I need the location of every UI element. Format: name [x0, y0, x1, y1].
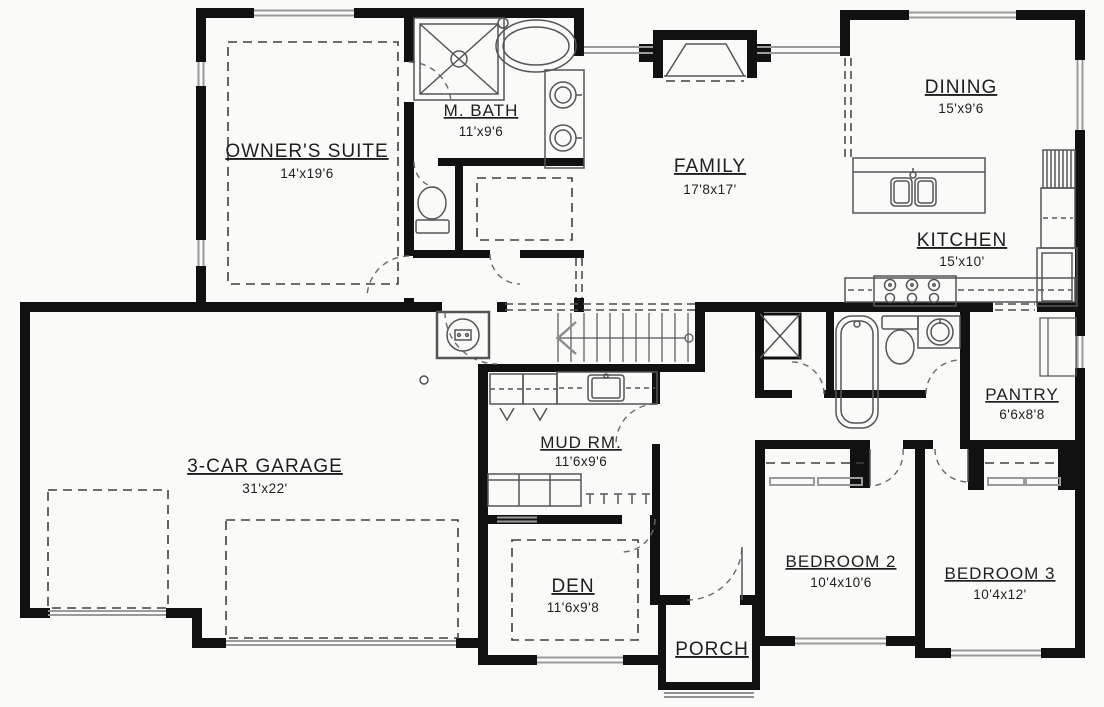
- room-label-bedroom-2: BEDROOM 2: [785, 552, 896, 571]
- room-dims-m-bath: 11'x9'6: [459, 124, 503, 139]
- shower: [414, 18, 504, 100]
- room-label-m-bath: M. BATH: [444, 101, 519, 120]
- vanity-sink: [918, 316, 960, 348]
- room-label-garage: 3-CAR GARAGE: [187, 456, 343, 477]
- pantry-shelves: [1040, 318, 1076, 376]
- room-label-porch: PORCH: [675, 639, 749, 660]
- double-vanity: [545, 70, 584, 168]
- linen-chase: [760, 314, 800, 358]
- coat-hooks: [586, 494, 650, 504]
- bathtub: [836, 316, 878, 428]
- kitchen-island-sink: [853, 158, 985, 213]
- room-dims-den: 11'6x9'8: [547, 600, 599, 615]
- room-dims-garage: 31'x22': [242, 481, 287, 496]
- floor-plan-canvas: OWNER'S SUITE 14'x19'6 M. BATH 11'x9'6 F…: [0, 0, 1104, 707]
- water-heater: [437, 312, 489, 358]
- mud-sink: [557, 372, 657, 404]
- room-dims-mud-room: 11'6x9'6: [555, 454, 607, 469]
- room-dims-family: 17'8x17': [683, 182, 736, 197]
- kitchen-counter: [845, 278, 1075, 302]
- room-label-bedroom-3: BEDROOM 3: [944, 564, 1055, 583]
- room-dims-pantry: 6'6x8'8: [999, 407, 1044, 422]
- furnace: [420, 376, 428, 384]
- room-label-kitchen: KITCHEN: [917, 230, 1007, 251]
- stairs: [556, 313, 693, 362]
- toilet-2: [882, 316, 918, 364]
- lockers: [490, 374, 557, 420]
- soaking-tub: [496, 18, 576, 72]
- room-dims-kitchen: 15'x10': [939, 254, 984, 269]
- room-label-mud-room: MUD RM.: [540, 433, 622, 452]
- tall-cabinet: [1041, 150, 1075, 248]
- porch-steps: [664, 693, 754, 697]
- toilet: [416, 187, 449, 233]
- room-label-pantry: PANTRY: [985, 385, 1058, 404]
- fireplace: [664, 44, 746, 76]
- refrigerator: [1037, 248, 1077, 306]
- room-dims-dining: 15'x9'6: [938, 101, 983, 116]
- room-dims-owners-suite: 14'x19'6: [280, 166, 333, 181]
- room-label-den: DEN: [551, 576, 594, 597]
- floor-plan-page: OWNER'S SUITE 14'x19'6 M. BATH 11'x9'6 F…: [0, 0, 1104, 707]
- room-label-family: FAMILY: [674, 156, 746, 177]
- bench-cubbies: [488, 474, 581, 506]
- room-dims-bedroom-2: 10'4x10'6: [810, 575, 871, 590]
- room-label-owners-suite: OWNER'S SUITE: [225, 141, 388, 162]
- room-label-dining: DINING: [925, 77, 998, 98]
- room-dims-bedroom-3: 10'4x12': [973, 587, 1026, 602]
